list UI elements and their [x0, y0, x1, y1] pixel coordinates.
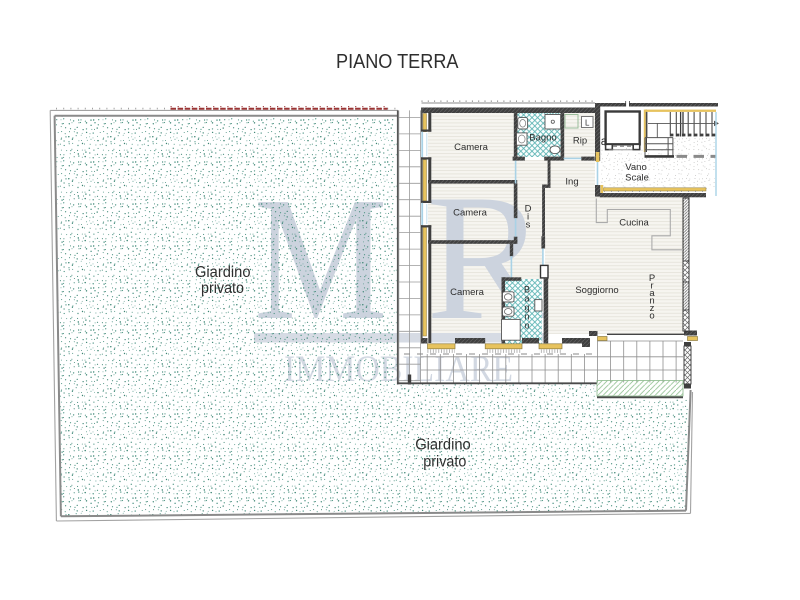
svg-text:Camera: Camera — [453, 208, 488, 219]
svg-text:a: a — [601, 136, 608, 148]
svg-text:Cucina: Cucina — [619, 218, 649, 229]
svg-text:Ing: Ing — [565, 177, 578, 188]
svg-text:o: o — [649, 311, 654, 322]
svg-text:Soggiorno: Soggiorno — [575, 285, 618, 296]
svg-text:L: L — [585, 119, 590, 128]
svg-text:Camera: Camera — [450, 287, 485, 298]
svg-text:s: s — [526, 220, 531, 231]
svg-text:Giardino: Giardino — [195, 264, 251, 281]
svg-text:PIANO TERRA: PIANO TERRA — [336, 51, 459, 73]
svg-text:Scale: Scale — [625, 173, 649, 184]
svg-text:privato: privato — [423, 453, 466, 470]
svg-text:Giardino: Giardino — [415, 436, 471, 453]
svg-text:Rip: Rip — [573, 136, 587, 147]
svg-text:Camera: Camera — [454, 142, 489, 153]
svg-text:Bagno: Bagno — [529, 133, 556, 144]
svg-text:Vano: Vano — [625, 162, 646, 173]
svg-text:privato: privato — [201, 280, 244, 297]
svg-text:o: o — [524, 321, 529, 331]
